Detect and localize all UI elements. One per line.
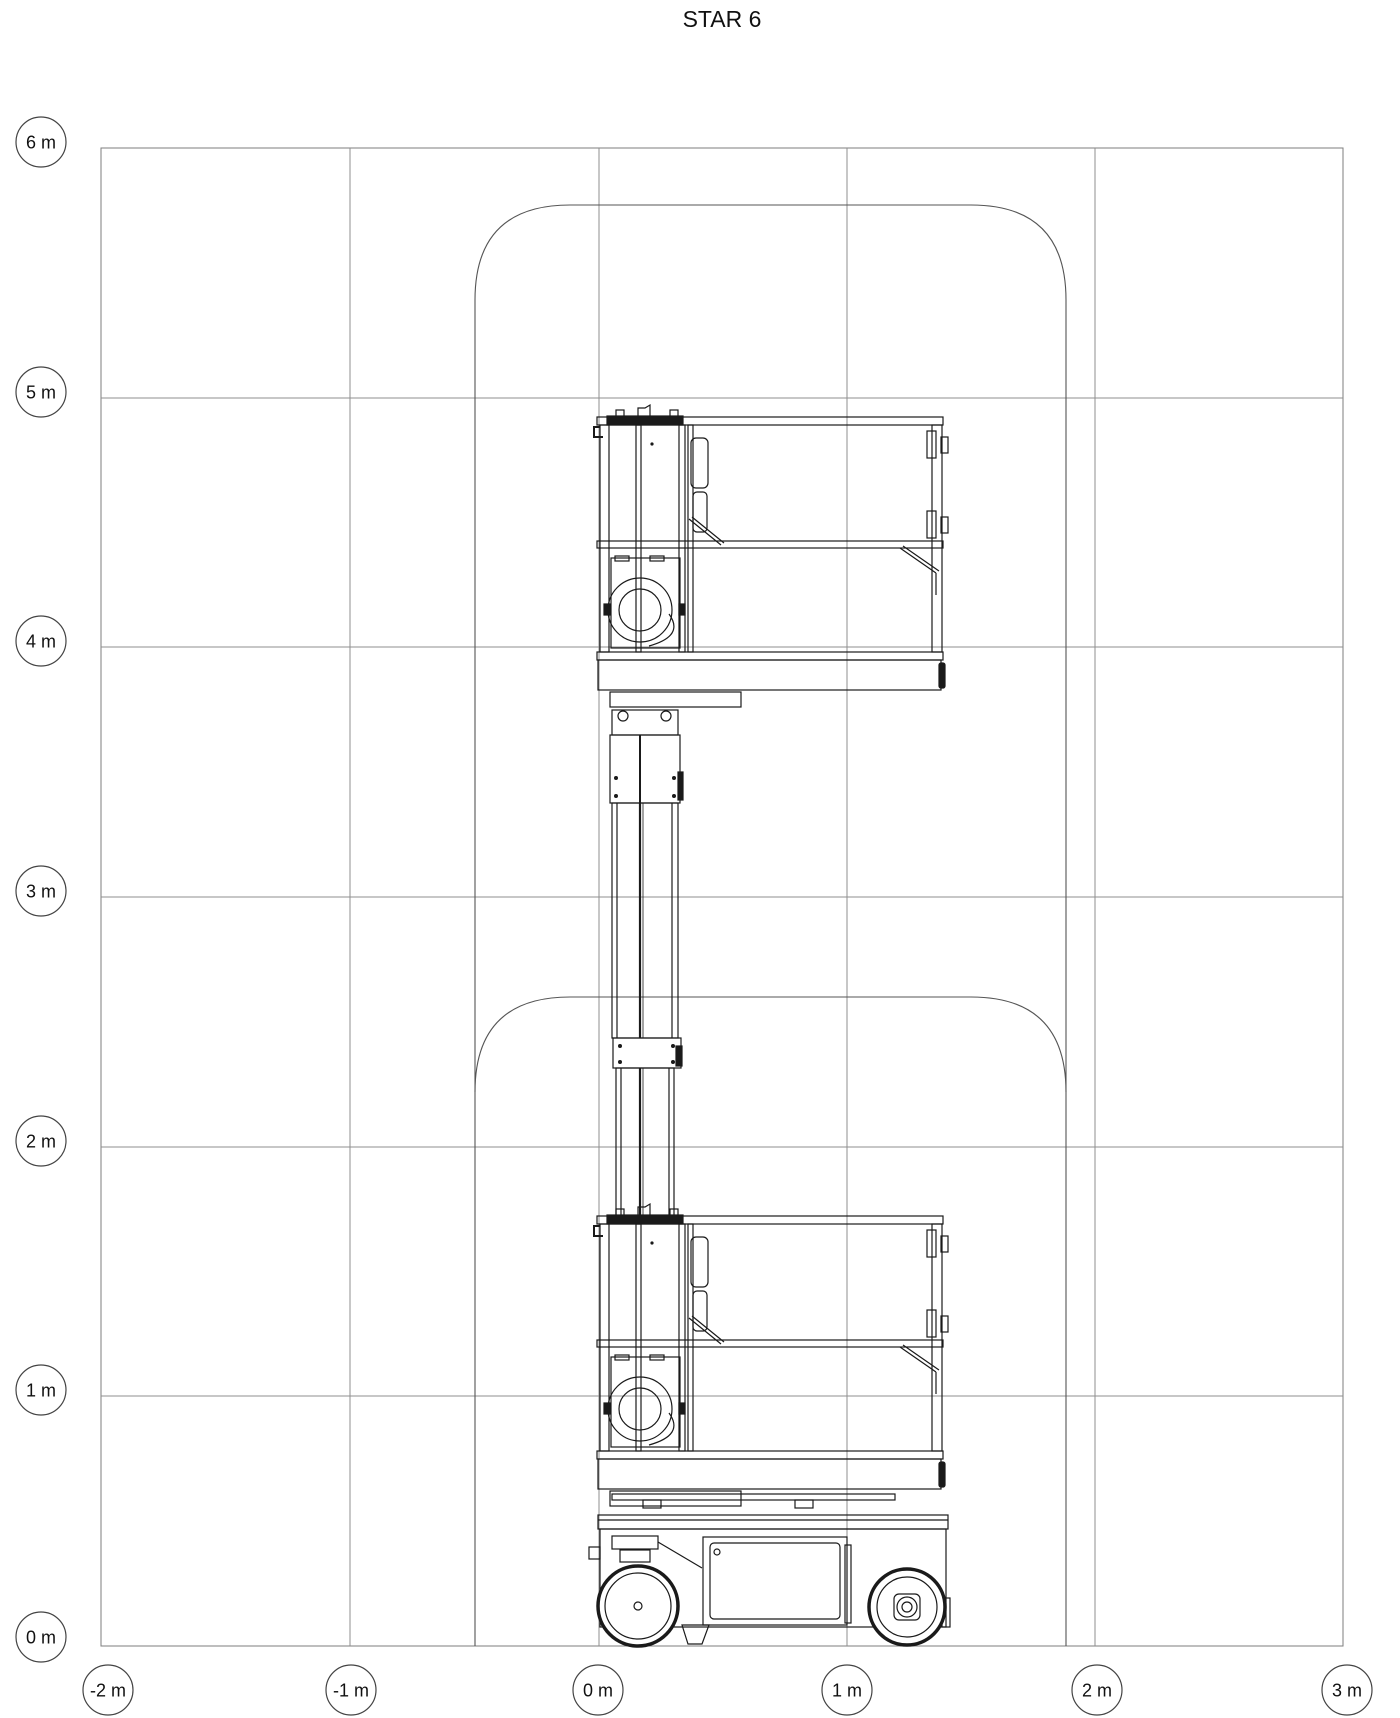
- x-axis: -2 m -1 m 0 m 1 m 2 m 3 m: [83, 1665, 1372, 1715]
- x-axis-label-minus2m: -2 m: [83, 1665, 133, 1715]
- svg-text:2 m: 2 m: [26, 1132, 56, 1152]
- battery-compartment: [703, 1537, 847, 1625]
- x-axis-label-3m: 3 m: [1322, 1665, 1372, 1715]
- x-axis-label-0m: 0 m: [573, 1665, 623, 1715]
- y-axis-label-2m: 2 m: [16, 1116, 66, 1166]
- platform-stowed: [594, 1204, 948, 1506]
- y-axis-label-3m: 3 m: [16, 866, 66, 916]
- mast: [610, 710, 683, 1218]
- x-axis-label-1m: 1 m: [822, 1665, 872, 1715]
- chassis: [589, 1494, 950, 1646]
- x-axis-label-2m: 2 m: [1072, 1665, 1122, 1715]
- door-latch: [714, 1549, 720, 1555]
- svg-text:-2 m: -2 m: [90, 1681, 126, 1701]
- chassis-deck: [598, 1515, 948, 1529]
- y-axis-label-4m: 4 m: [16, 616, 66, 666]
- svg-text:0 m: 0 m: [26, 1628, 56, 1648]
- svg-text:4 m: 4 m: [26, 632, 56, 652]
- svg-text:5 m: 5 m: [26, 383, 56, 403]
- grid: [101, 148, 1343, 1646]
- working-envelope-diagram: STAR 6: [0, 0, 1400, 1718]
- svg-text:3 m: 3 m: [26, 882, 56, 902]
- wheel-left: [598, 1566, 678, 1646]
- page-title: STAR 6: [683, 6, 762, 32]
- wheel-right: [869, 1569, 945, 1645]
- svg-text:-1 m: -1 m: [333, 1681, 369, 1701]
- svg-text:1 m: 1 m: [26, 1381, 56, 1401]
- svg-text:6 m: 6 m: [26, 133, 56, 153]
- y-axis-label-6m: 6 m: [16, 117, 66, 167]
- mast-lift-drawing: [589, 405, 950, 1646]
- envelope-elevated-outline: [475, 205, 1066, 1646]
- working-envelope-outline: [475, 205, 1066, 1646]
- x-axis-label-minus1m: -1 m: [326, 1665, 376, 1715]
- pothole-guard: [682, 1625, 709, 1644]
- svg-text:2 m: 2 m: [1082, 1681, 1112, 1701]
- y-axis: 6 m 5 m 4 m 3 m 2 m 1 m 0 m: [16, 117, 66, 1662]
- y-axis-label-5m: 5 m: [16, 367, 66, 417]
- platform-elevated: [594, 405, 948, 707]
- y-axis-label-0m: 0 m: [16, 1612, 66, 1662]
- svg-text:1 m: 1 m: [832, 1681, 862, 1701]
- battery-door: [710, 1543, 840, 1619]
- y-axis-label-1m: 1 m: [16, 1365, 66, 1415]
- envelope-stowed-outline: [475, 997, 1066, 1092]
- svg-text:3 m: 3 m: [1332, 1681, 1362, 1701]
- svg-text:0 m: 0 m: [583, 1681, 613, 1701]
